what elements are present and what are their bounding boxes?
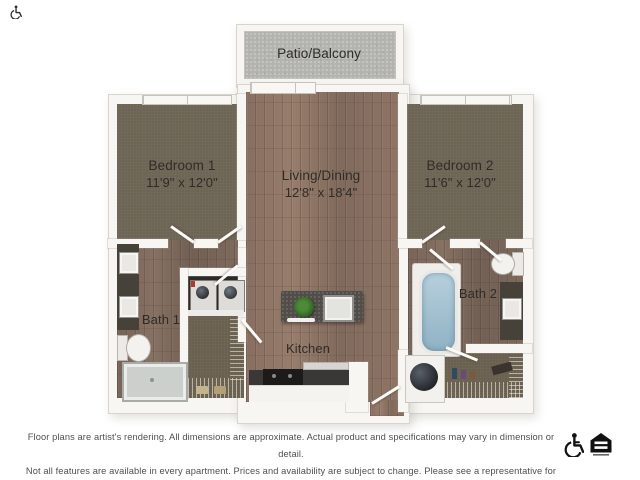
counter-shelf <box>303 362 349 370</box>
living-label: Living/Dining 12'8" x 18'4" <box>282 167 361 201</box>
detergent-bottle <box>191 281 195 287</box>
bedroom2-label: Bedroom 2 11'6" x 12'0" <box>424 157 496 191</box>
bedroom2-dims: 11'6" x 12'0" <box>424 175 496 192</box>
living-dims: 12'8" x 18'4" <box>282 185 361 202</box>
bath1-sink-1 <box>119 252 139 274</box>
patio-sliding-door <box>250 82 316 94</box>
dryer-door <box>224 286 237 299</box>
house-plant <box>294 297 314 317</box>
wall-kitchen-peninsula <box>346 362 368 412</box>
wall-bed2-bottom-b <box>450 239 480 248</box>
wall-bed2-bottom-c <box>506 239 532 248</box>
bathtub <box>419 270 458 354</box>
closet2-item-2 <box>461 370 466 379</box>
wall-closet2-top <box>466 344 532 353</box>
kitchen-cabinets <box>249 385 349 402</box>
wall-bed1-bottom-b <box>194 239 218 248</box>
washer-door <box>196 286 209 299</box>
bedroom1-dims: 11'9" x 12'0" <box>146 175 218 192</box>
wall-bed2-bottom-a <box>398 239 422 248</box>
wall-bed2-living <box>398 94 407 240</box>
bath1-shower <box>122 362 188 402</box>
bath1-label-text: Bath 1 <box>142 312 180 327</box>
water-heater <box>410 363 438 391</box>
bedroom2-window <box>420 95 512 105</box>
bath2-label: Bath 2 <box>459 286 497 303</box>
closet1-basket-1 <box>196 386 208 394</box>
wall-laundry-top <box>180 268 246 276</box>
laundry-counter <box>188 310 244 316</box>
patio-label: Patio/Balcony <box>277 45 361 63</box>
bedroom1-name: Bedroom 1 <box>146 157 218 175</box>
bath2-label-text: Bath 2 <box>459 286 497 301</box>
kitchen-label: Kitchen <box>286 341 330 358</box>
island-sink <box>323 295 354 322</box>
disclaimer-line2: Not all features are available in every … <box>22 463 560 480</box>
bedroom1-window <box>142 95 232 105</box>
burner-1 <box>272 374 276 378</box>
patio-label-text: Patio/Balcony <box>277 46 361 61</box>
wheelchair-icon-small <box>9 5 22 19</box>
closet2-item-3 <box>470 371 475 379</box>
range-stove <box>263 369 303 385</box>
disclaimer: Floor plans are artist's rendering. All … <box>22 429 560 480</box>
disclaimer-line1: Floor plans are artist's rendering. All … <box>22 429 560 463</box>
shower-drain <box>150 378 154 382</box>
wall-bed1-living <box>237 94 246 240</box>
bedroom1-label: Bedroom 1 11'9" x 12'0" <box>146 157 218 191</box>
bath1-sink-2 <box>119 296 139 318</box>
closet2-shelving-bottom <box>443 382 523 398</box>
floor-plan-page: Patio/Balcony Bedroom 1 11'9" x 12'0" Li… <box>0 0 640 480</box>
bath1-label: Bath 1 <box>142 312 180 329</box>
burner-2 <box>288 374 292 378</box>
closet1-basket-2 <box>214 386 226 394</box>
kitchen-label-text: Kitchen <box>286 341 330 356</box>
closet2-item-1 <box>452 368 457 379</box>
living-name: Living/Dining <box>282 167 361 185</box>
bedroom2-name: Bedroom 2 <box>424 157 496 175</box>
island-ledge <box>287 318 315 322</box>
wheelchair-accessible-icon <box>562 432 584 457</box>
closet1-shelving-right <box>230 318 244 380</box>
bath2-sink <box>502 298 522 320</box>
bath1-toilet-bowl <box>126 334 151 362</box>
equal-housing-opportunity-icon <box>589 431 613 457</box>
